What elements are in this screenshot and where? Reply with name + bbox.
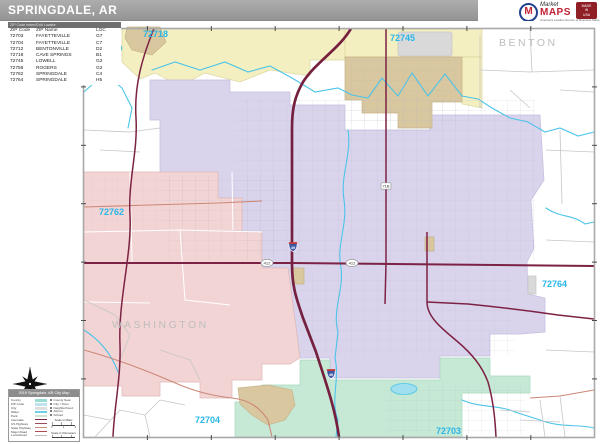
legend-item: Local Road [11,434,48,438]
legend-swatch [35,427,47,428]
legend-swatch [35,431,47,432]
legend-swatch [35,423,47,424]
title-bar: SPRINGDALE, AR [0,0,478,21]
zip-label-72704: 72704 [195,415,220,425]
street-grid [350,60,458,124]
route-shield-412: 412 [261,259,273,266]
zip-label-72762: 72762 [99,207,124,217]
brand-badge-line: USA [576,13,597,17]
legend-swatch [35,407,47,410]
legend-swatch [35,411,47,414]
svg-text:412: 412 [264,261,271,266]
legend-symbol-marker [50,399,52,401]
page-title: SPRINGDALE, AR [8,3,117,17]
legend-symbols: County SeatCity / TownNeighborhoodAirpor… [50,399,77,417]
legend-symbol-marker [50,410,52,412]
legend-symbol-label: School [54,413,63,417]
scale-value: 2 [75,426,76,429]
brand-badge: MADE IN USA [576,2,597,19]
legend-box: 2019 Springdale, AR City Map CountyZIP C… [8,389,80,442]
zip-label-72745: 72745 [390,33,415,43]
scale-value: 0 [51,426,52,429]
legend-swatch [35,435,47,436]
county-label-washington: WASHINGTON [112,319,209,331]
legend-symbol-marker [50,407,52,409]
zip-label-72764: 72764 [542,279,567,289]
svg-text:412: 412 [349,261,356,266]
legend-items: CountyZIP CodeCityWaterParkInterstateUS … [11,399,48,439]
legend-symbol-marker [50,403,52,405]
brand-word-maps: MAPS [540,8,574,17]
legend-swatch [35,415,47,418]
svg-text:49: 49 [329,373,333,377]
svg-text:71B: 71B [382,184,389,189]
zip-table-cell: H5 [96,78,116,84]
scale-miles-values: 0 1 2 [51,426,76,429]
county-label-benton: BENTON [499,37,558,49]
street-grid [300,272,515,356]
zip-label-72703: 72703 [436,426,461,436]
zip-table-cell: 72764 [8,78,36,84]
scale-bar-km [52,435,75,439]
map-page: SPRINGDALE, AR M Market MAPS America's L… [0,0,600,444]
brand-logo-words: Market MAPS America's Leading Source of … [540,2,574,22]
legend-swatch [35,403,47,406]
svg-text:49: 49 [291,246,295,250]
route-shield-71B: 71B [381,183,391,189]
zip-table-row: 72764SPRINGDALEH5 [8,78,121,84]
scale-value: 1 [63,426,64,429]
street-grid [90,175,215,230]
legend-title: 2019 Springdale, AR City Map [9,390,79,397]
zip-table-cell: SPRINGDALE [36,78,96,84]
brand-logo-icon: M [519,3,538,22]
zip-table-body: 72703FAYETTEVILLEG772704FAYETTEVILLEC772… [8,34,121,84]
pond [391,384,417,395]
scale-km-label: Scale in Kilometers [50,431,77,435]
zip-index-table: ZIP Code Index/Grid Locator ZIP Code ZIP… [8,22,121,85]
legend-swatch [35,399,47,402]
route-shield-412: 412 [346,259,358,266]
legend-symbol: School [50,413,77,417]
built-up-area [528,276,536,294]
legend-symbol-marker [50,414,52,416]
legend-swatch [35,419,47,420]
legend-item-label: Local Road [11,433,35,437]
zip-label-72718: 72718 [143,29,168,39]
